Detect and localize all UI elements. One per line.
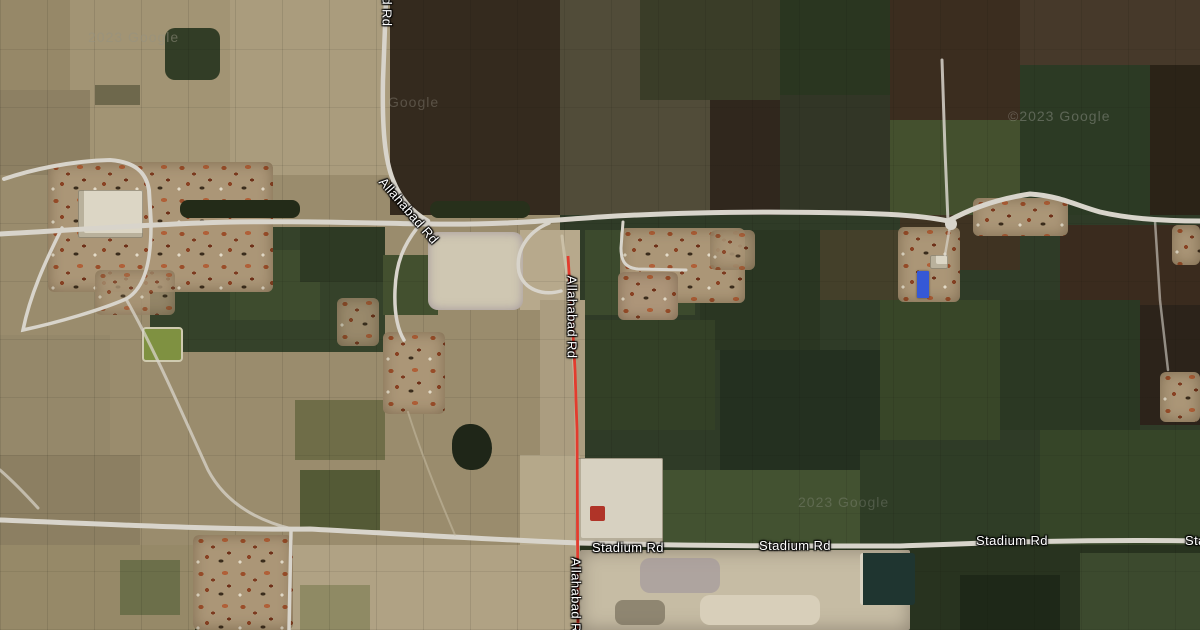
google-watermark: ©2023 Google bbox=[1008, 108, 1111, 124]
road-label-allahabad-bottom: Allahabad Rd bbox=[568, 558, 582, 630]
road-stub bbox=[0, 470, 38, 508]
road-diagonal-track bbox=[126, 299, 292, 529]
google-watermark: 2023 Google bbox=[88, 29, 179, 45]
road-right-north bbox=[942, 60, 948, 222]
road-allahabad-main bbox=[0, 194, 1200, 234]
google-watermark: Google bbox=[388, 94, 439, 110]
road-label-stadium-2: Stadium Rd bbox=[759, 539, 831, 553]
road-label-allahabad-top: Allahabad Rd bbox=[379, 0, 393, 26]
road-curve-south bbox=[395, 228, 417, 340]
google-watermark: 2023 Google bbox=[798, 494, 889, 510]
satellite-map-canvas[interactable]: Allahabad Rd Allahabad Rd Allahabad Rd A… bbox=[0, 0, 1200, 630]
road-right-stub bbox=[945, 226, 950, 255]
road-label-stadium-4-clipped: Stadium Rd bbox=[1185, 534, 1200, 548]
road-village-loop-north bbox=[4, 160, 151, 224]
road-track-village bbox=[408, 412, 455, 535]
road-village-loop-south bbox=[23, 226, 151, 330]
road-right-edge-spur bbox=[1155, 221, 1168, 370]
road-village-east bbox=[289, 531, 291, 630]
road-label-allahabad-mid: Allahabad Rd bbox=[564, 276, 578, 359]
road-label-stadium-1: Stadium Rd bbox=[592, 541, 664, 555]
road-junction-loop bbox=[945, 218, 957, 230]
road-sandpit-loop bbox=[518, 223, 561, 293]
road-center-village-loop bbox=[621, 222, 686, 270]
road-label-stadium-3: Stadium Rd bbox=[976, 534, 1048, 548]
